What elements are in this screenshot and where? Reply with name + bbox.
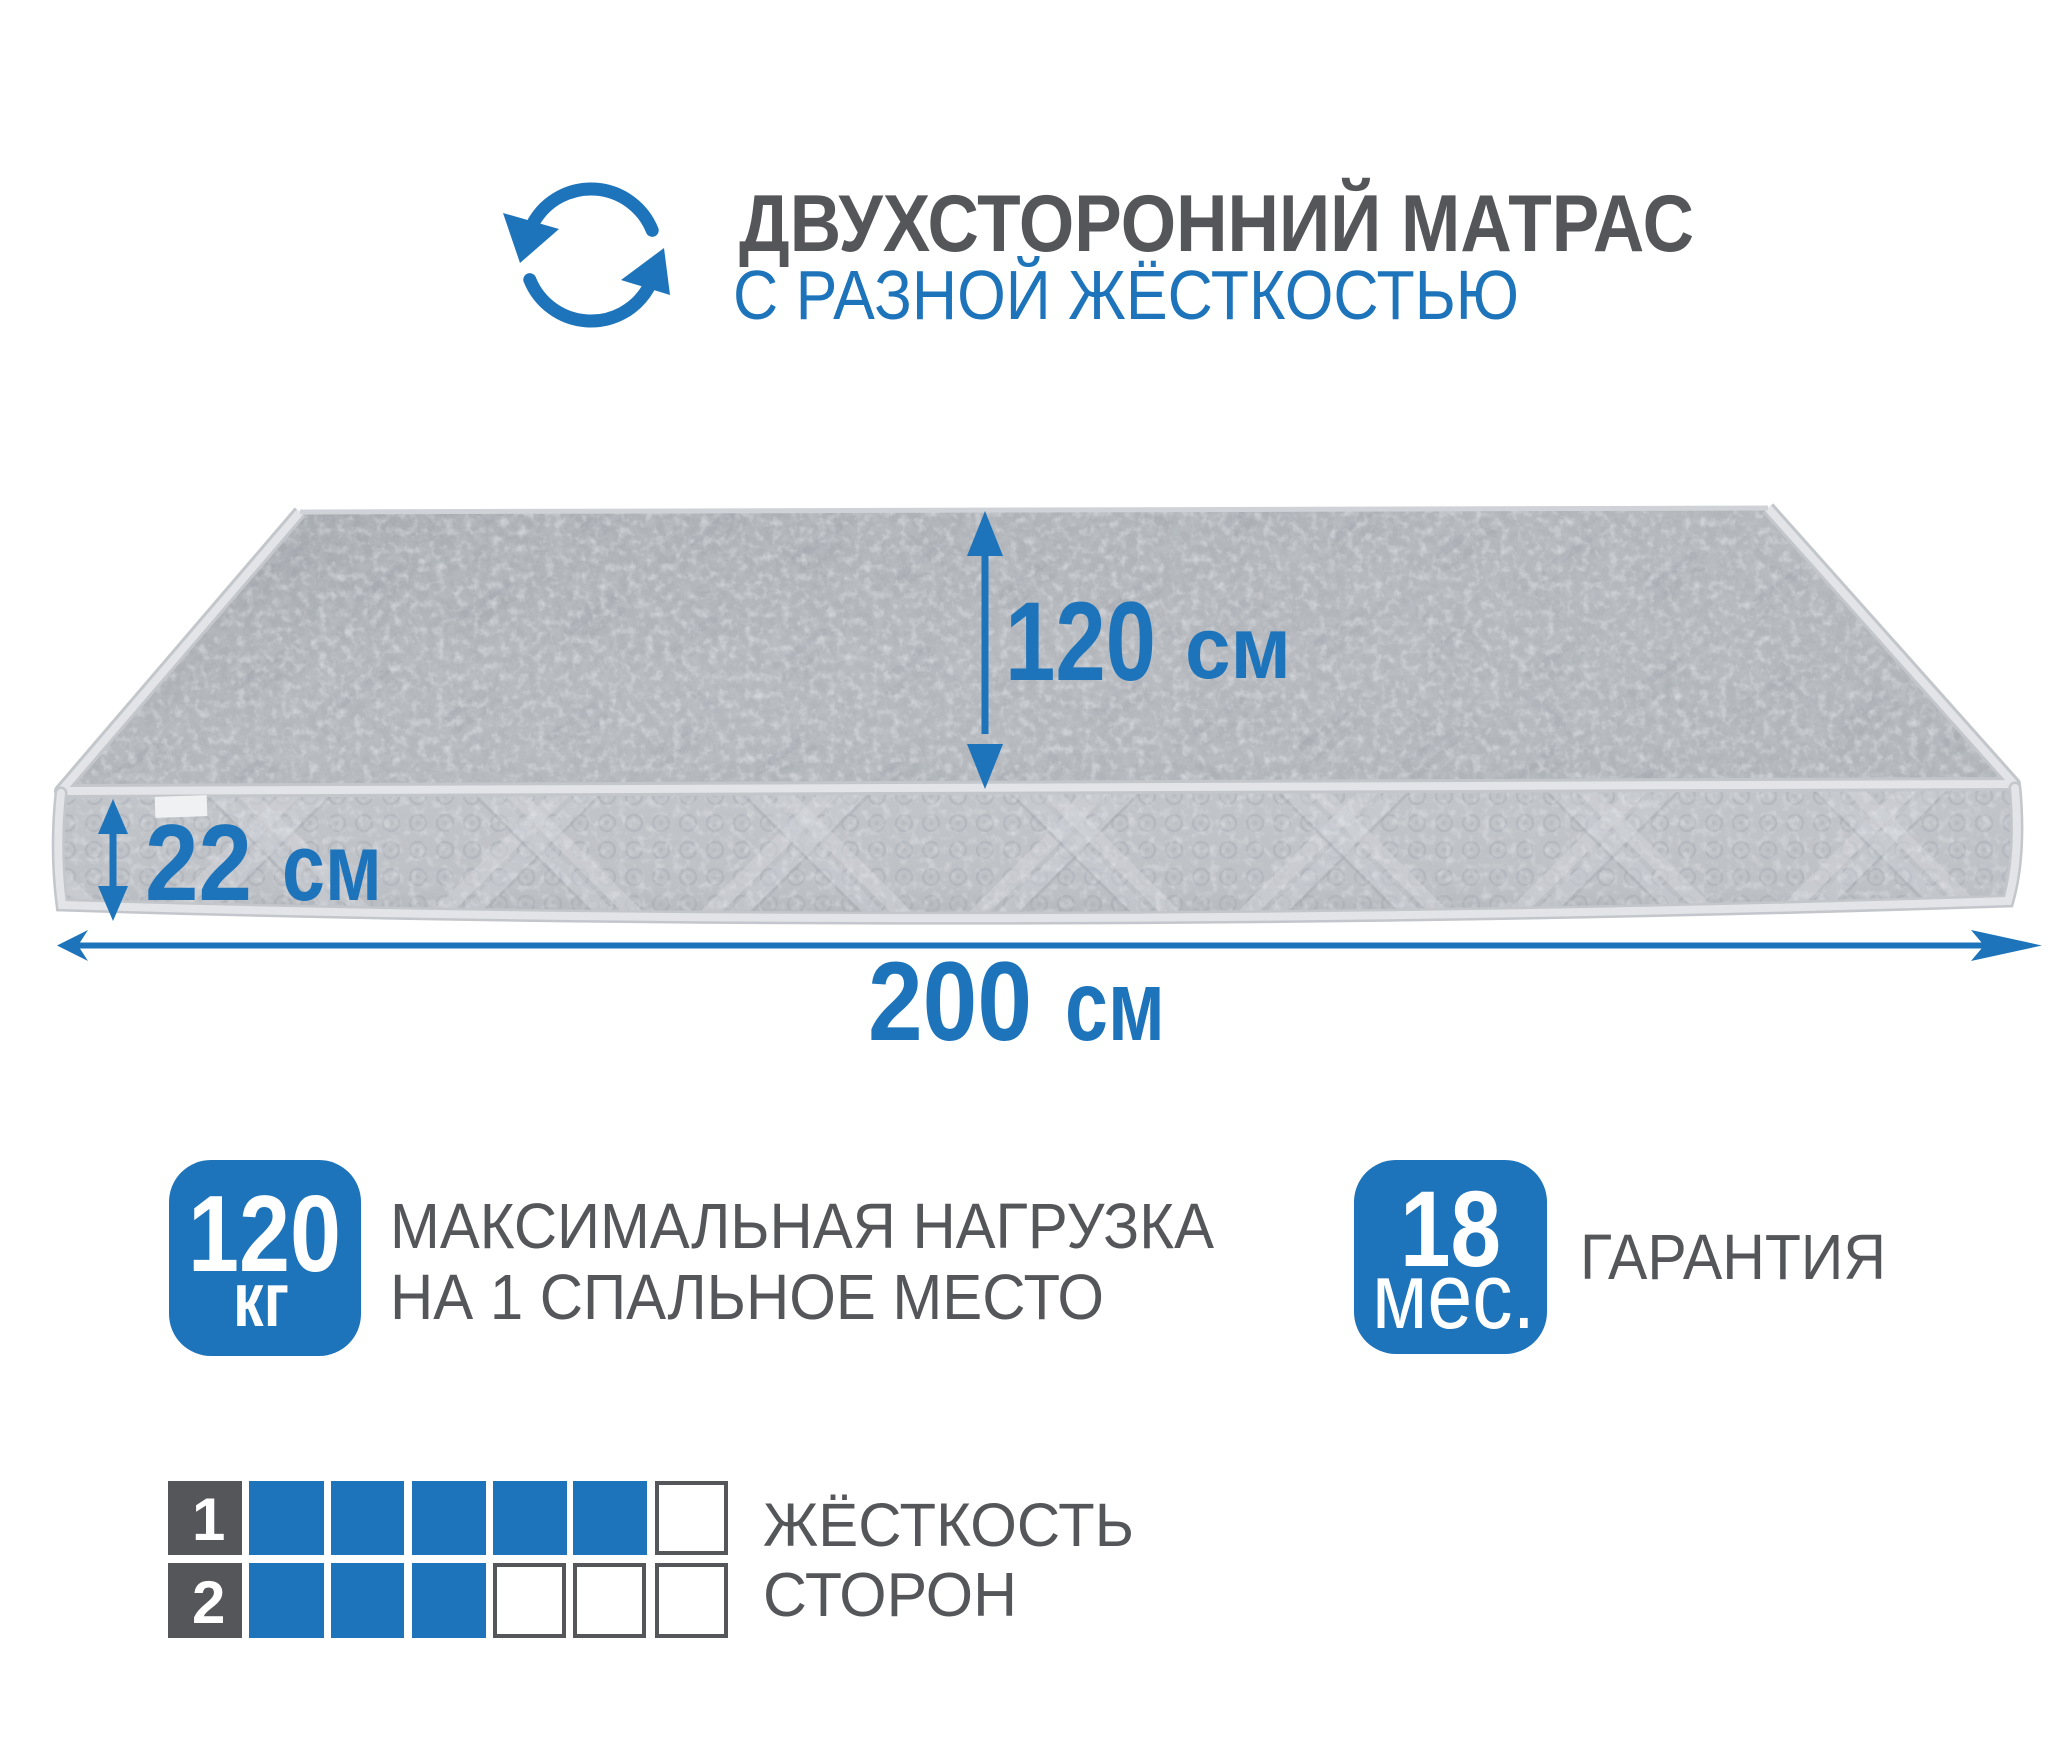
svg-text:2: 2 bbox=[192, 1569, 225, 1636]
svg-text:см: см bbox=[282, 814, 382, 921]
svg-text:С РАЗНОЙ ЖЁСТКОСТЬЮ: С РАЗНОЙ ЖЁСТКОСТЬЮ bbox=[733, 255, 1519, 334]
svg-text:см: см bbox=[1065, 950, 1165, 1062]
svg-text:МАКСИМАЛЬНАЯ НАГРУЗКА: МАКСИМАЛЬНАЯ НАГРУЗКА bbox=[390, 1190, 1214, 1262]
svg-text:200: 200 bbox=[868, 939, 1032, 1064]
svg-text:НА 1 СПАЛЬНОЕ МЕСТО: НА 1 СПАЛЬНОЕ МЕСТО bbox=[390, 1261, 1104, 1333]
svg-text:120: 120 bbox=[1005, 579, 1156, 704]
svg-text:ГАРАНТИЯ: ГАРАНТИЯ bbox=[1580, 1221, 1886, 1293]
svg-text:мес.: мес. bbox=[1372, 1243, 1535, 1348]
svg-text:СТОРОН: СТОРОН bbox=[763, 1561, 1017, 1630]
svg-text:см: см bbox=[1185, 598, 1291, 697]
svg-text:1: 1 bbox=[192, 1486, 225, 1553]
svg-text:кг: кг bbox=[233, 1257, 289, 1343]
svg-text:ЖЁСТКОСТЬ: ЖЁСТКОСТЬ bbox=[763, 1491, 1134, 1559]
svg-text:22: 22 bbox=[145, 802, 252, 924]
